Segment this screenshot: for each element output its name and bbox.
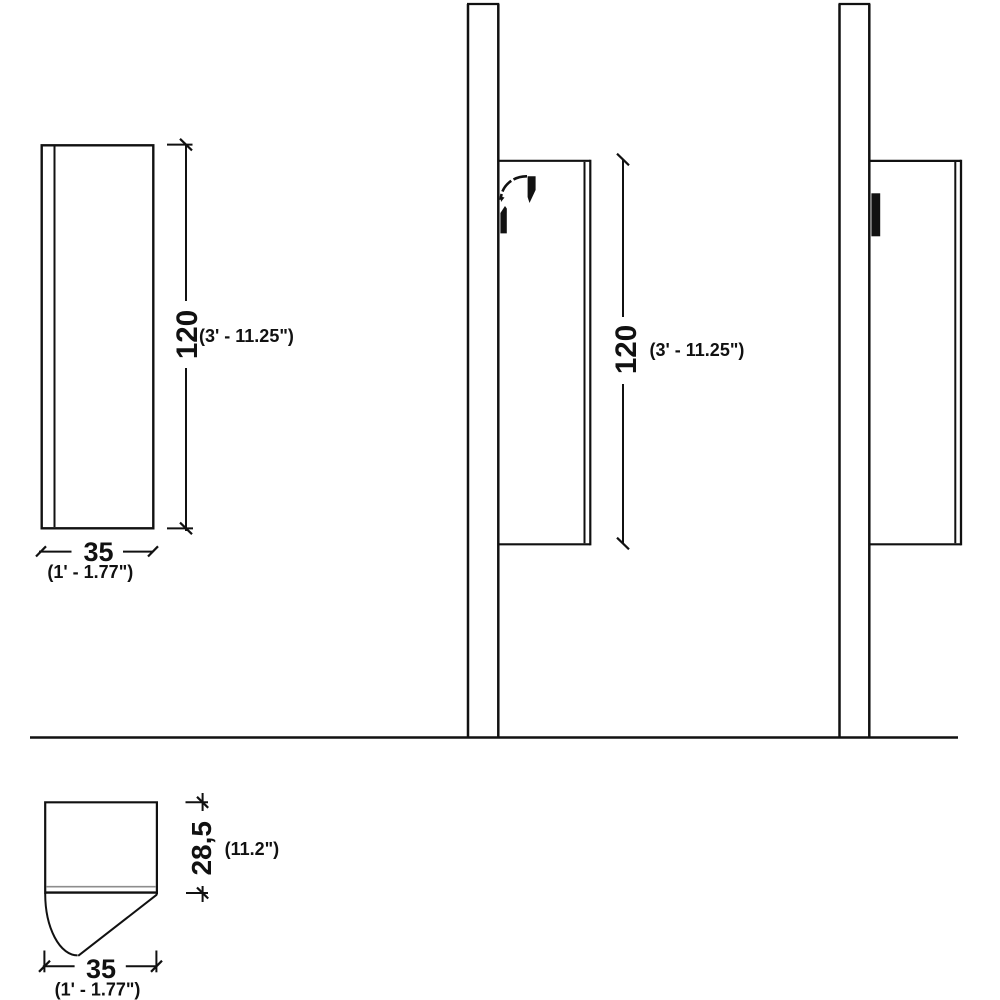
svg-text:(11.2"): (11.2") [225,839,280,859]
svg-text:(1' - 1.77"): (1' - 1.77") [55,980,141,1000]
svg-text:120: 120 [610,325,643,374]
svg-text:28,5: 28,5 [186,821,217,876]
svg-text:(1' - 1.77"): (1' - 1.77") [47,562,133,582]
svg-text:(3' - 11.25"): (3' - 11.25") [199,326,294,346]
svg-text:(3' - 11.25"): (3' - 11.25") [650,340,745,360]
